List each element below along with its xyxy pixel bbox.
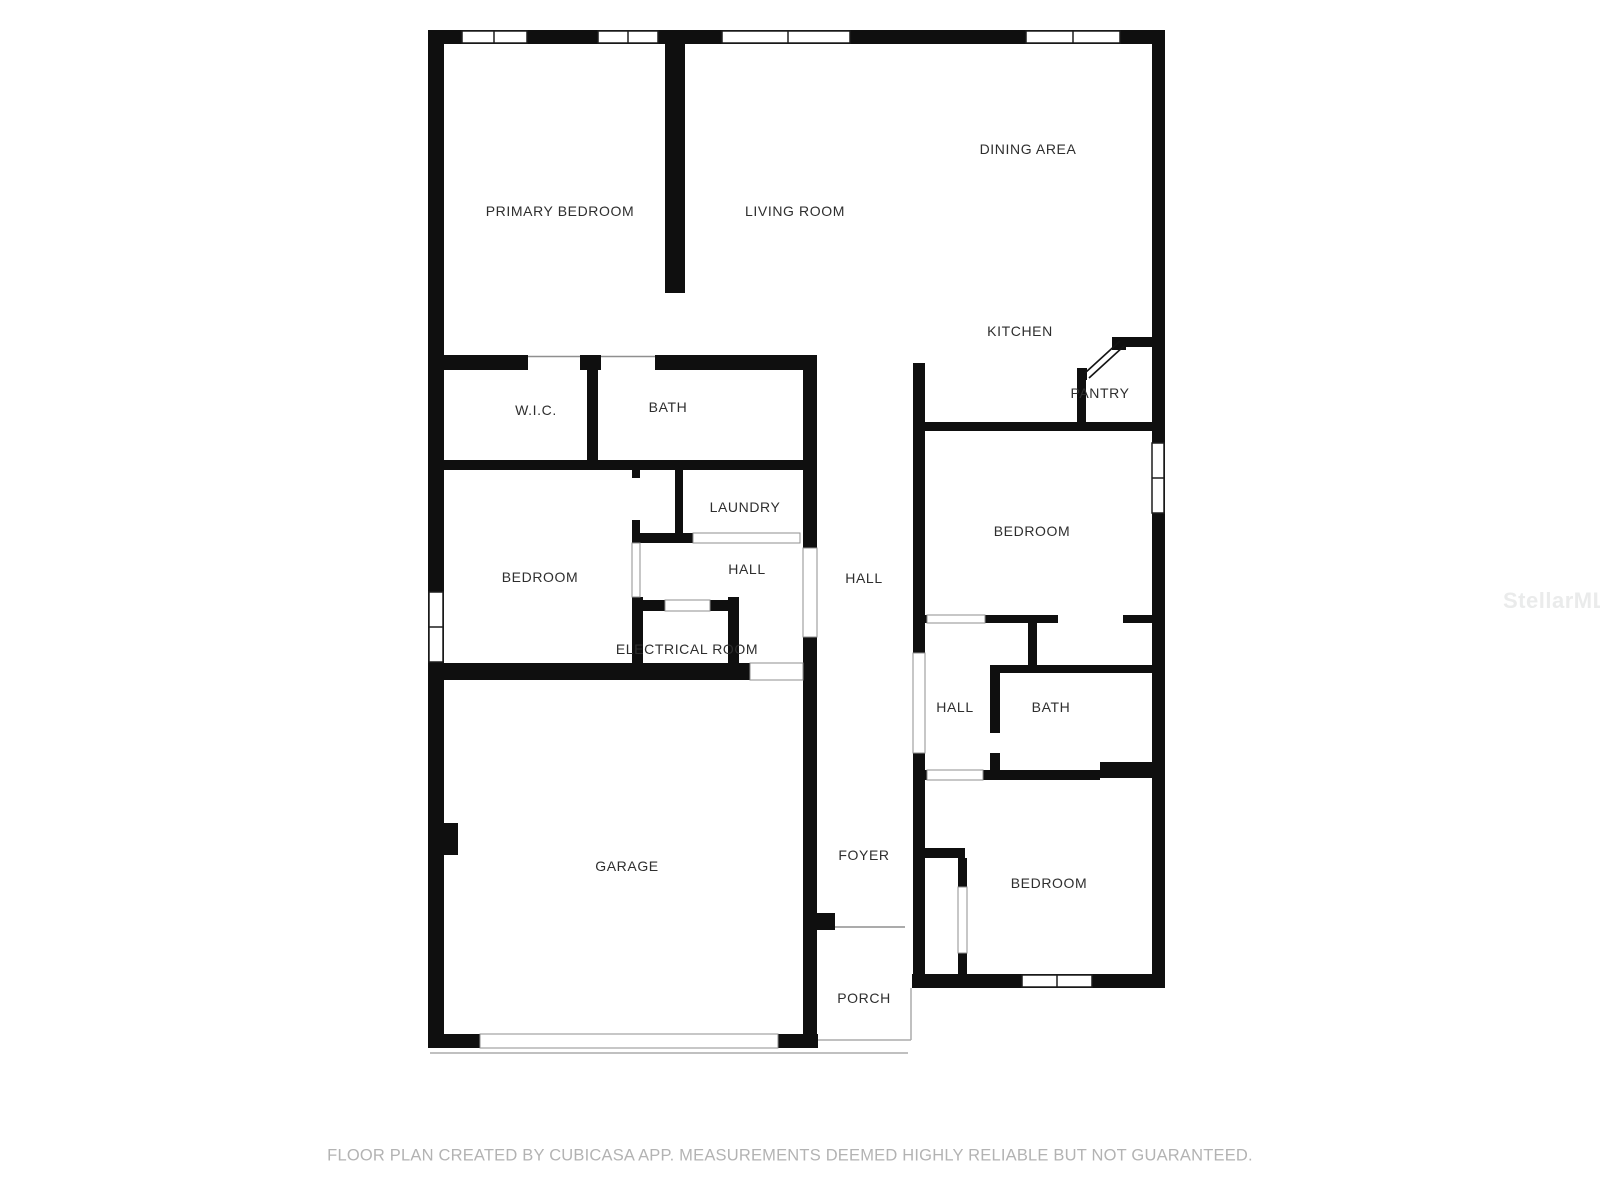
wall-bedroom-right-bottom-b bbox=[985, 615, 1058, 623]
room-label-bedroom-left: BEDROOM bbox=[502, 569, 579, 585]
wall-bath-right-shower-block bbox=[1100, 762, 1153, 778]
room-label-foyer: FOYER bbox=[838, 847, 889, 863]
wall-exterior-left bbox=[428, 30, 444, 1048]
room-label-bedroom-bottom-right: BEDROOM bbox=[1011, 875, 1088, 891]
wall-below-primary-a bbox=[428, 355, 528, 370]
wall-hall-right-bottom-b bbox=[983, 770, 1100, 780]
room-label-living-room: LIVING ROOM bbox=[745, 203, 845, 219]
wall-bedroom-right-bottom-c bbox=[1123, 615, 1165, 623]
wall-corridor-left-lower bbox=[803, 683, 817, 1048]
wall-hall-right-bottom-a bbox=[913, 770, 927, 780]
bedroom-right-door-opening bbox=[927, 615, 985, 623]
wall-wic-bath-divider bbox=[587, 368, 598, 463]
room-label-laundry: LAUNDRY bbox=[710, 499, 781, 515]
room-label-garage: GARAGE bbox=[595, 858, 659, 874]
wall-closet-strip-divider bbox=[1028, 623, 1037, 665]
wall-below-wic-bath bbox=[443, 460, 817, 470]
wall-closet-left-a bbox=[632, 468, 640, 478]
room-label-hall-left: HALL bbox=[728, 561, 765, 577]
wall-bedroom-right-top bbox=[922, 422, 1165, 431]
room-label-hall-right: HALL bbox=[936, 699, 973, 715]
wall-bath-right-top bbox=[995, 665, 1153, 673]
laundry-door-opening bbox=[693, 533, 800, 543]
wall-corridor-right-lower bbox=[913, 753, 925, 988]
room-label-bath-primary: BATH bbox=[649, 399, 688, 415]
wall-front-door-stub bbox=[815, 913, 835, 930]
wall-corridor-right-upper bbox=[913, 363, 925, 653]
wall-corridor-left-upper bbox=[803, 358, 817, 548]
wall-closet-br-top bbox=[920, 848, 965, 858]
room-label-bath-right: BATH bbox=[1032, 699, 1071, 715]
wall-closet-br-right-a bbox=[958, 858, 967, 887]
room-label-hall-center: HALL bbox=[845, 570, 882, 586]
electrical-door-opening bbox=[665, 600, 710, 611]
window-living-double bbox=[722, 31, 850, 43]
stellar-mls-watermark: StellarMLS bbox=[1503, 588, 1600, 614]
room-label-wic: W.I.C. bbox=[515, 402, 557, 418]
garage-entry-opening bbox=[750, 663, 803, 680]
wall-below-primary-c bbox=[655, 355, 817, 370]
floor-plan-disclaimer: FLOOR PLAN CREATED BY CUBICASA APP. MEAS… bbox=[327, 1147, 1253, 1166]
wall-primary-living-divider bbox=[665, 30, 685, 293]
corridor-left-opening bbox=[803, 548, 817, 637]
windows bbox=[429, 31, 1164, 987]
wall-bath-right-left-a bbox=[990, 665, 1000, 733]
room-label-kitchen: KITCHEN bbox=[987, 323, 1053, 339]
corridor-right-opening bbox=[913, 653, 925, 753]
wall-laundry-bottom bbox=[638, 533, 693, 543]
room-label-porch: PORCH bbox=[837, 990, 891, 1006]
bedroom-left-entry-opening bbox=[632, 543, 640, 597]
wall-garage-top bbox=[428, 663, 750, 680]
wall-pantry-jamb-upper bbox=[1112, 337, 1126, 350]
room-label-electrical-room: ELECTRICAL ROOM bbox=[616, 641, 758, 657]
wall-below-primary-b bbox=[580, 355, 601, 370]
room-label-pantry: PANTRY bbox=[1070, 385, 1129, 401]
closet-br-door-opening bbox=[958, 887, 967, 953]
floor-plan-page: PRIMARY BEDROOM LIVING ROOM DINING AREA … bbox=[0, 0, 1600, 1200]
wall-electrical-top-a bbox=[640, 600, 665, 611]
wall-garage-left-bump bbox=[444, 823, 458, 855]
garage-door-opening bbox=[480, 1034, 778, 1048]
room-label-primary-bedroom: PRIMARY BEDROOM bbox=[486, 203, 635, 219]
wall-bedroom-right-bottom-a bbox=[913, 615, 927, 623]
room-label-bedroom-right: BEDROOM bbox=[994, 523, 1071, 539]
wall-closet-br-right-b bbox=[958, 953, 967, 977]
bedroom-br-door-opening bbox=[927, 770, 983, 780]
wall-corridor-left-mid bbox=[803, 637, 817, 683]
wall-closet-left-east bbox=[675, 468, 683, 533]
window-mullions bbox=[429, 31, 1164, 987]
floor-plan-drawing bbox=[0, 0, 1600, 1200]
room-label-dining-area: DINING AREA bbox=[980, 141, 1077, 157]
